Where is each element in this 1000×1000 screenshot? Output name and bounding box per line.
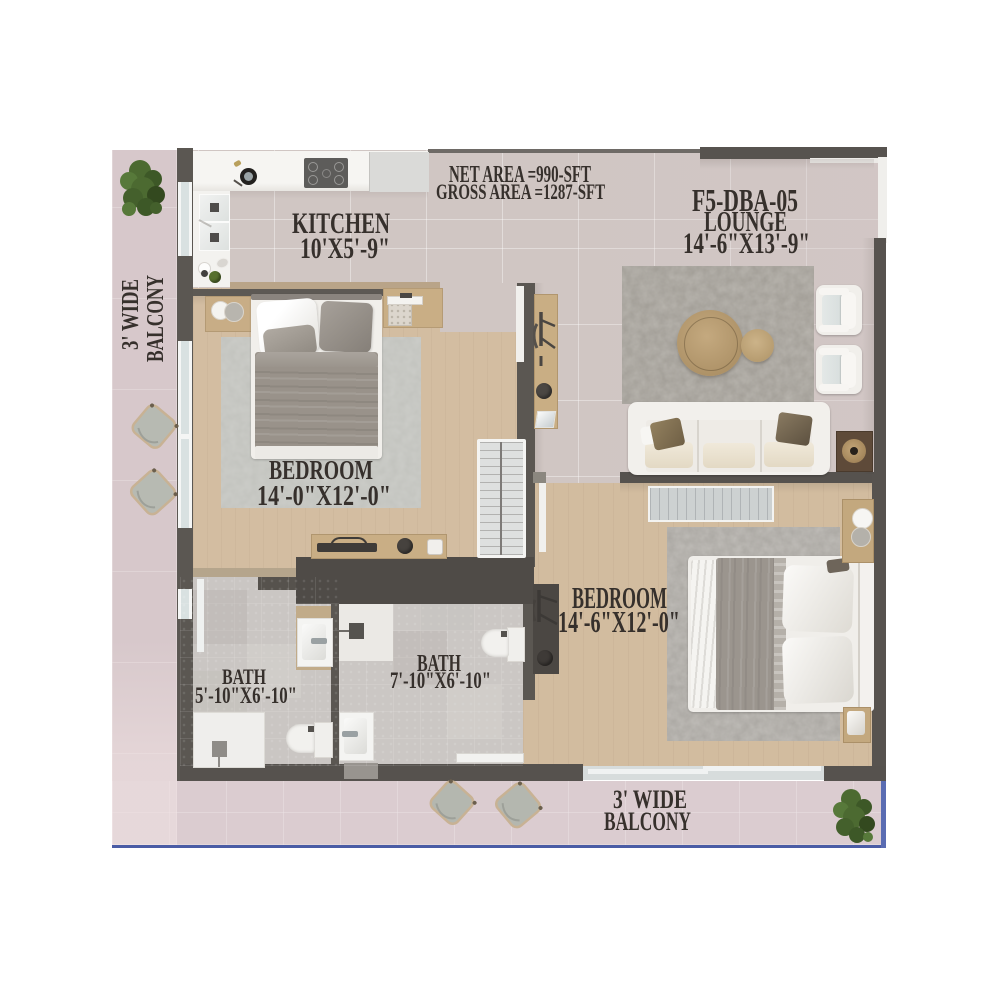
svg-text:10'X5'-9": 10'X5'-9" [300, 232, 390, 265]
svg-text:GROSS AREA =1287-SFT: GROSS AREA =1287-SFT [436, 179, 605, 204]
svg-text:5'-10"X6'-10": 5'-10"X6'-10" [195, 683, 297, 708]
svg-text:14'-6"X13'-9": 14'-6"X13'-9" [683, 227, 810, 260]
svg-text:BALCONY: BALCONY [604, 807, 691, 836]
svg-text:7'-10"X6'-10": 7'-10"X6'-10" [390, 668, 491, 693]
svg-text:3' WIDE: 3' WIDE [118, 279, 144, 350]
svg-text:14'-6"X12'-0": 14'-6"X12'-0" [558, 604, 680, 639]
svg-text:14'-0"X12'-0": 14'-0"X12'-0" [257, 481, 391, 512]
svg-text:BALCONY: BALCONY [143, 275, 169, 362]
